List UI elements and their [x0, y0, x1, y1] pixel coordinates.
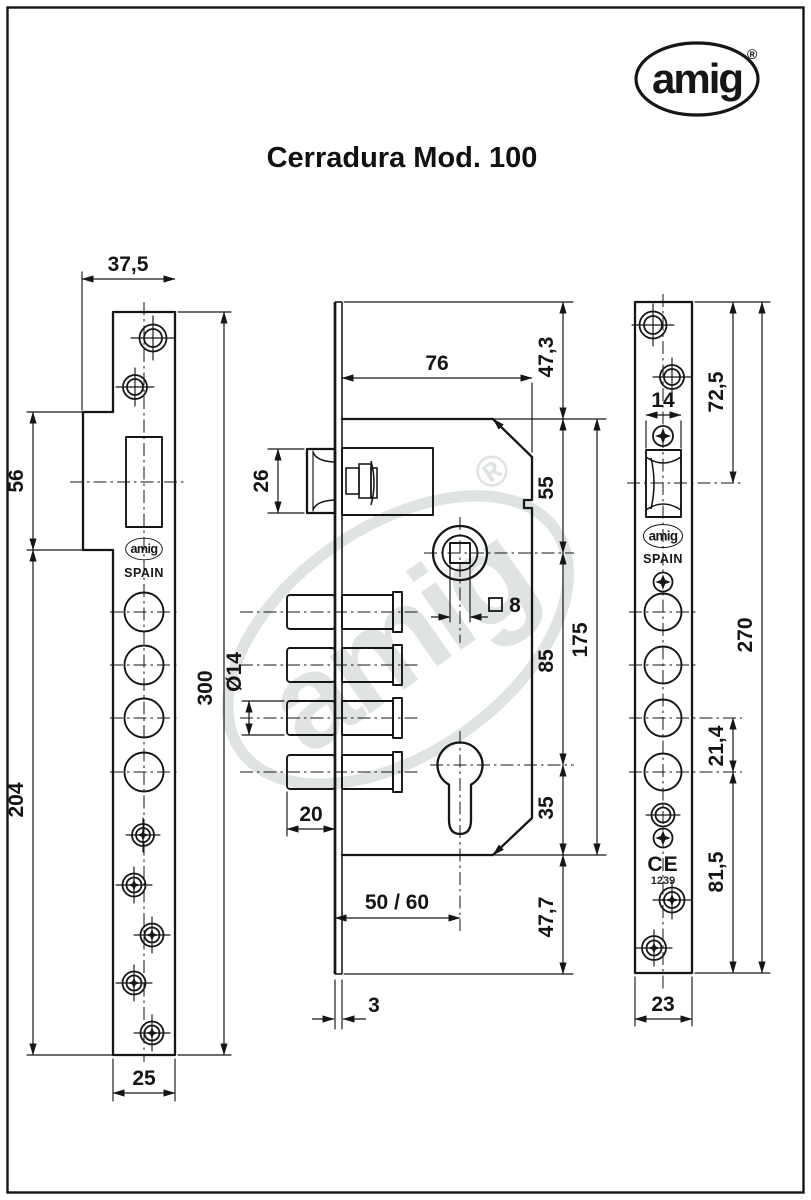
dim-top-to-latch: 72,5 [705, 302, 733, 483]
svg-text:35: 35 [535, 796, 558, 820]
dim-hub-to-cylinder: 85 [535, 553, 563, 765]
phillips-screw [654, 573, 673, 592]
svg-text:14: 14 [651, 389, 675, 412]
screw-hole [131, 316, 175, 360]
dim-hole-spacing: 21,4 [705, 718, 733, 772]
dim-bolt-protrusion: 20 [287, 792, 335, 836]
svg-text:20: 20 [299, 803, 322, 826]
dim-bottom-offset: 47,7 [535, 855, 563, 974]
bolt-hole-circles [110, 593, 178, 792]
dim-plate-thickness: 3 [312, 980, 380, 1029]
left-view-faceplate: amig SPAIN [5, 253, 231, 1101]
svg-text:amig: amig [652, 55, 742, 102]
right-view-strike-plate: 14 amig SPAIN [627, 294, 770, 1026]
spain-label: SPAIN [124, 566, 164, 580]
screw-hole [126, 818, 160, 852]
svg-text:175: 175 [569, 622, 592, 657]
screw-hole [134, 917, 170, 953]
screw-hole [632, 304, 674, 346]
dim-top-offset: 47,3 [535, 302, 563, 419]
svg-text:37,5: 37,5 [108, 253, 149, 276]
ce-mark: CE [647, 853, 678, 876]
svg-text:76: 76 [425, 352, 448, 375]
amig-stamp-logo: amig [643, 524, 682, 547]
drawing-sheet: amig ® amig ® Cerradura Mod. 100 [0, 0, 811, 1200]
screw-hole [116, 368, 154, 406]
dim-cylinder-to-bottom: 35 [535, 765, 563, 855]
svg-text:55: 55 [535, 476, 558, 500]
dim-body-height: 175 [569, 419, 597, 855]
svg-text:270: 270 [734, 617, 757, 652]
page-title: Cerradura Mod. 100 [267, 142, 538, 174]
amig-logo: amig ® [636, 43, 758, 115]
svg-text:204: 204 [5, 782, 28, 817]
svg-text:8: 8 [509, 594, 521, 617]
svg-text:72,5: 72,5 [705, 371, 728, 412]
bottom-chamfer [493, 818, 532, 855]
svg-text:81,5: 81,5 [705, 851, 728, 892]
svg-text:3: 3 [368, 994, 380, 1017]
svg-text:47,3: 47,3 [535, 337, 558, 378]
svg-text:amig: amig [131, 542, 158, 556]
spain-label: SPAIN [643, 552, 683, 566]
dim-backset: 50 / 60 [335, 891, 460, 918]
svg-text:21,4: 21,4 [705, 725, 728, 766]
dim-latch-height: 26 [250, 449, 304, 513]
screw-hole [116, 867, 152, 903]
phillips-screw [654, 829, 673, 848]
screw-hole [636, 930, 672, 966]
svg-text:23: 23 [651, 993, 674, 1016]
svg-text:Ø14: Ø14 [223, 652, 246, 692]
svg-text:50 / 60: 50 / 60 [365, 891, 429, 914]
dim-total-height: 270 [734, 302, 762, 973]
screw-hole [116, 965, 152, 1001]
svg-text:47,7: 47,7 [535, 897, 558, 938]
top-chamfer [493, 419, 532, 457]
dim-flange-height: 56 [5, 412, 83, 550]
dim-body-depth: 76 [342, 352, 532, 452]
svg-text:85: 85 [535, 649, 558, 673]
svg-text:56: 56 [5, 469, 28, 492]
svg-text:®: ® [747, 46, 758, 62]
svg-text:25: 25 [132, 1067, 156, 1090]
svg-text:26: 26 [250, 469, 273, 492]
faceplate-outline [83, 312, 175, 1055]
dim-bottom-section: 81,5 [705, 772, 733, 973]
dim-lower-height: 204 [5, 550, 113, 1055]
svg-text:300: 300 [194, 670, 217, 705]
screw-hole [134, 1015, 170, 1051]
phillips-screw [653, 426, 673, 446]
svg-text:amig: amig [649, 528, 678, 543]
latch-opening [627, 450, 742, 517]
screw-hole [646, 804, 680, 827]
dim-bottom-width: 25 [113, 1059, 175, 1101]
